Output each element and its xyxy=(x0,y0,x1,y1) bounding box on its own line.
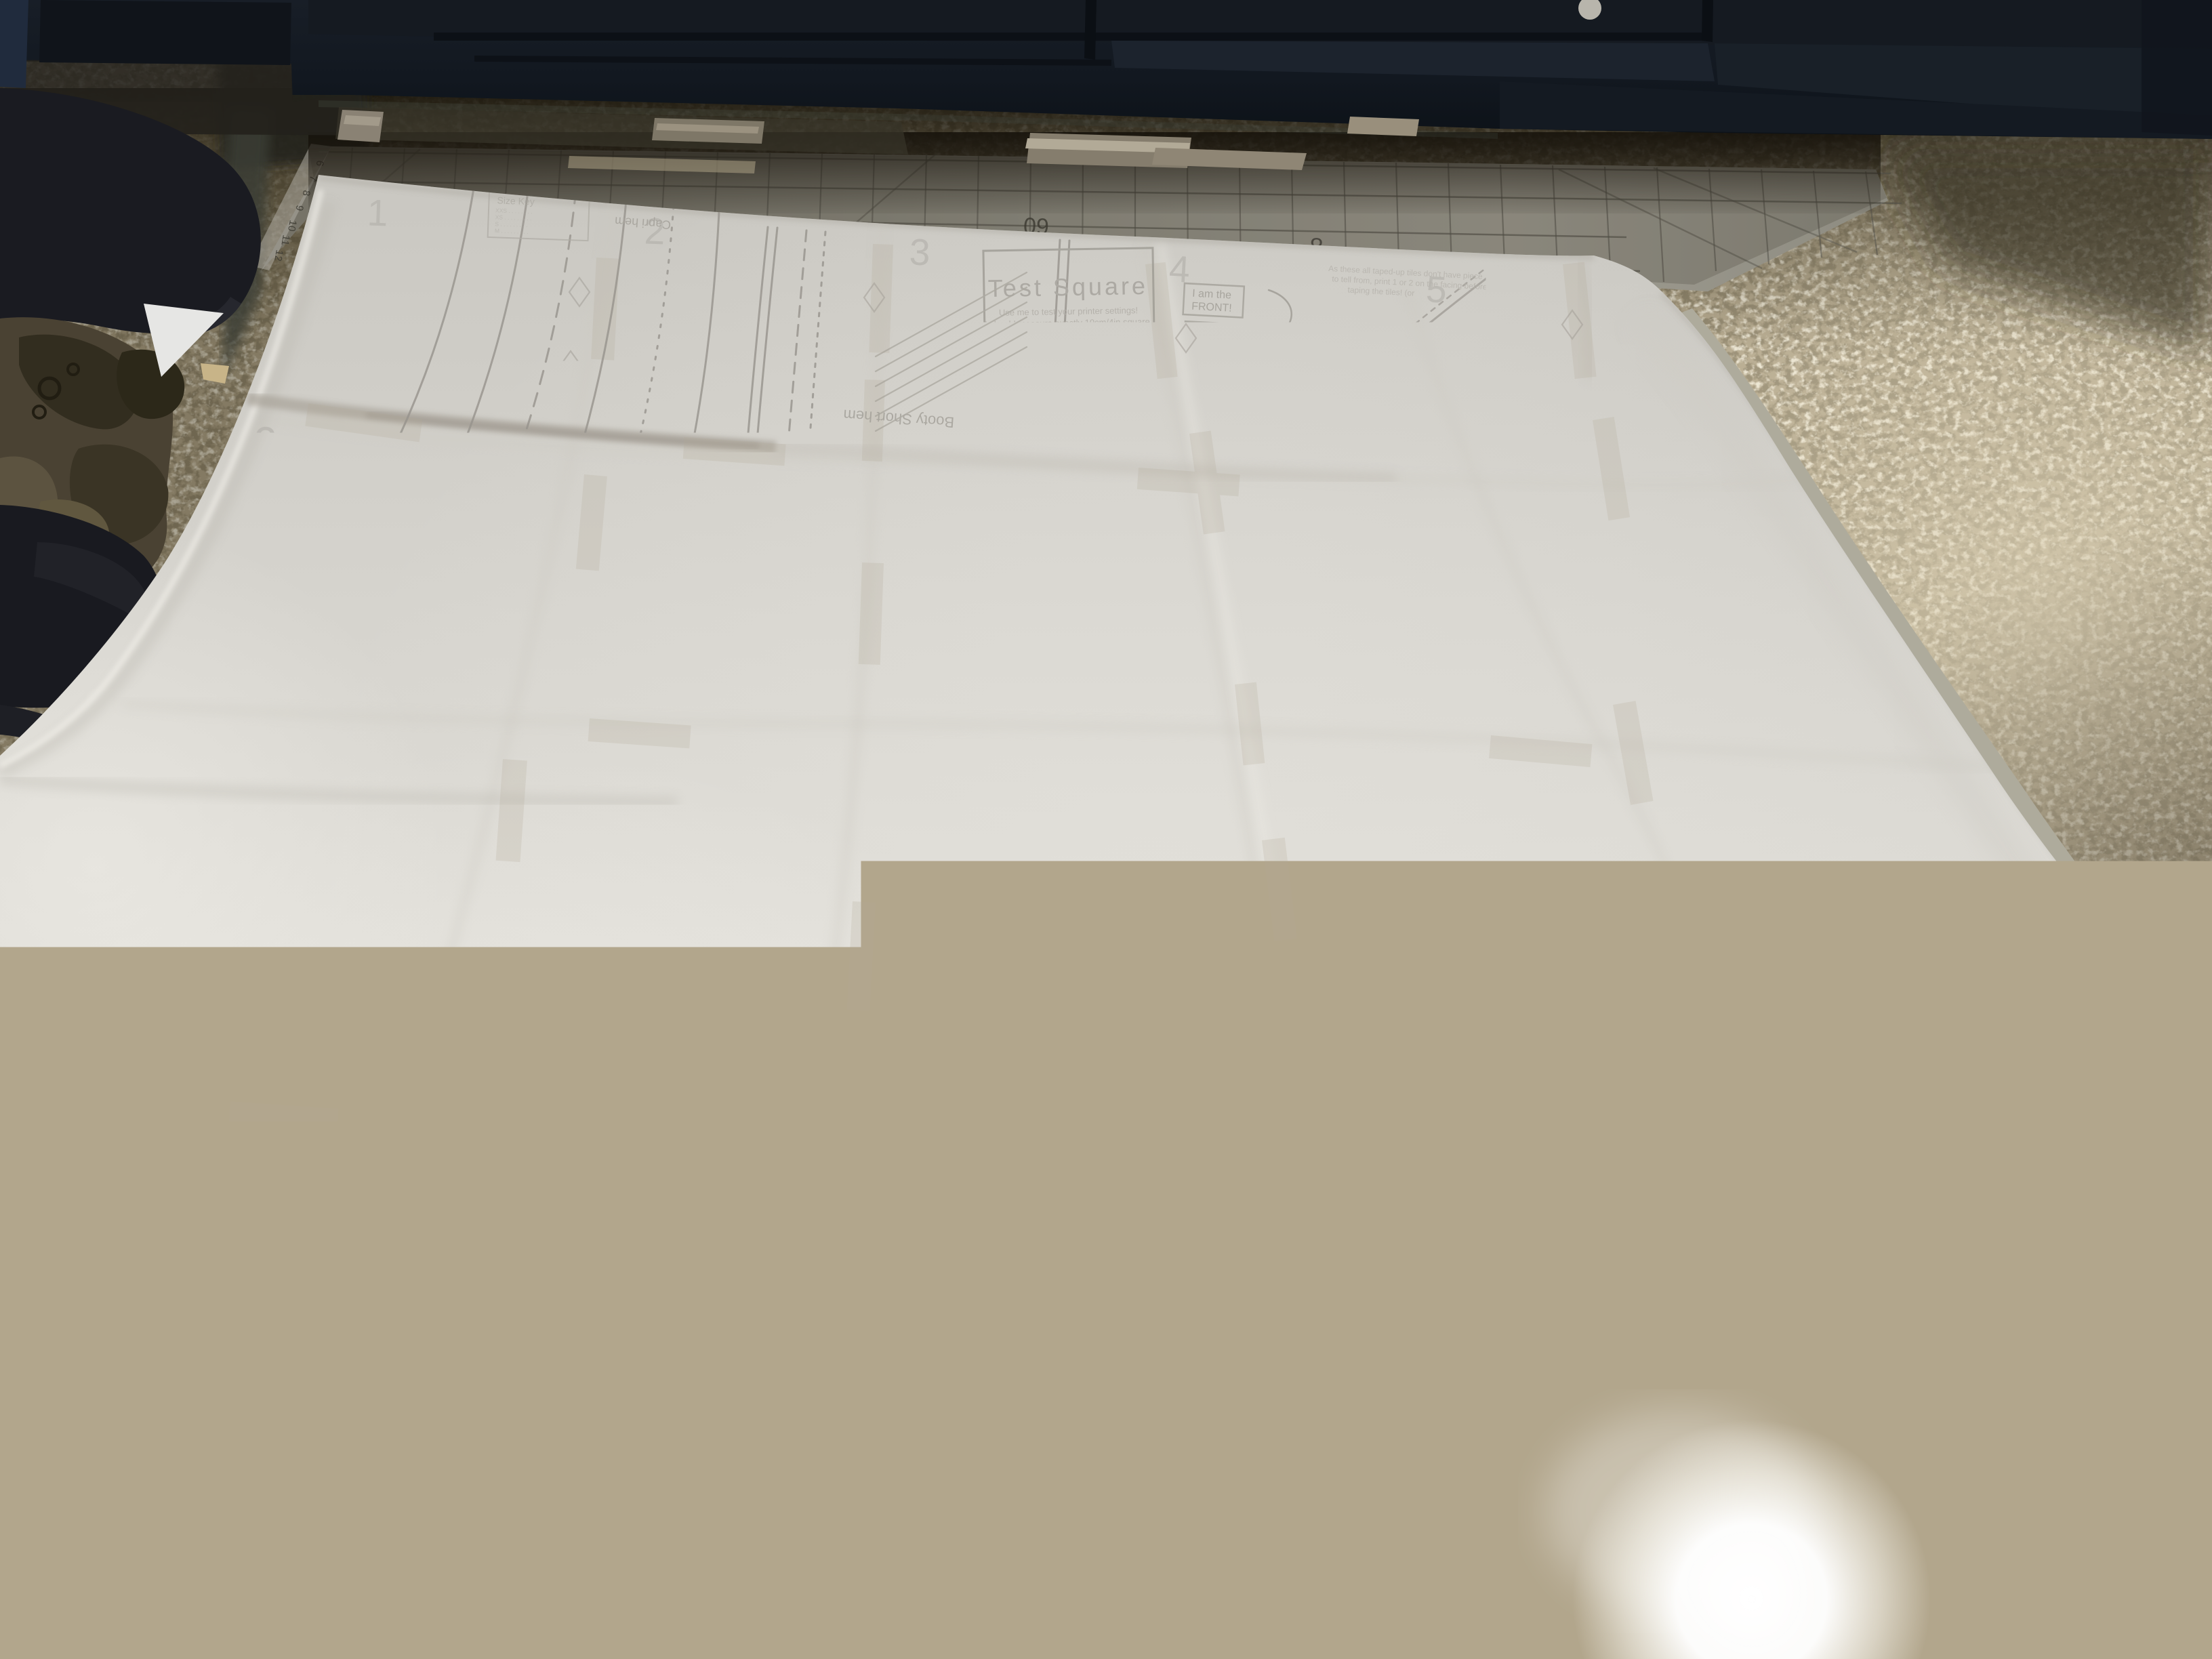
svg-text:I am the: I am the xyxy=(1193,326,1233,340)
svg-text:11: 11 xyxy=(87,693,150,755)
svg-text:18: 18 xyxy=(806,1103,890,1183)
svg-text:M: M xyxy=(1008,1277,1021,1293)
svg-text:XS: XS xyxy=(1612,428,1626,440)
svg-text:S: S xyxy=(702,679,713,695)
svg-text:M . . . . . . . . .: M . . . . . . . . . xyxy=(495,227,529,235)
svg-text:xl: xl xyxy=(1153,819,1165,836)
svg-text:3: 3 xyxy=(909,230,933,273)
svg-text:M: M xyxy=(699,728,712,744)
svg-text:9: 9 xyxy=(1204,463,1233,514)
svg-text:XXS: XXS xyxy=(1551,422,1573,434)
svg-text:f e h r: f e h r xyxy=(1286,1551,1313,1608)
svg-text:L: L xyxy=(8,931,17,947)
svg-text:15: 15 xyxy=(1605,708,1674,773)
svg-text:FRONT!: FRONT! xyxy=(1192,339,1233,352)
svg-text:XL: XL xyxy=(997,737,1015,753)
svg-text:XXS: XXS xyxy=(325,862,352,879)
svg-text:L: L xyxy=(108,853,117,868)
svg-text:XS: XS xyxy=(273,860,292,876)
svg-text:L: L xyxy=(701,775,710,792)
svg-text:XL: XL xyxy=(691,818,709,835)
svg-text:XXS: XXS xyxy=(215,946,243,963)
svg-text:S: S xyxy=(1673,433,1681,445)
svg-text:10: 10 xyxy=(285,219,299,232)
svg-text:12: 12 xyxy=(272,249,285,262)
svg-text:20: 20 xyxy=(1760,1094,1846,1176)
svg-text:10: 10 xyxy=(1510,473,1566,526)
svg-text:I am the: I am the xyxy=(1192,288,1232,302)
svg-text:6: 6 xyxy=(251,417,280,468)
svg-text:XXS: XXS xyxy=(996,1167,1025,1185)
svg-text:XS: XS xyxy=(694,630,714,647)
svg-text:S: S xyxy=(1000,691,1010,707)
svg-text:XXS: XXS xyxy=(686,580,716,598)
svg-text:FRONT!: FRONT! xyxy=(1191,301,1232,314)
svg-text:f e h r: f e h r xyxy=(1303,430,1364,460)
svg-text:11: 11 xyxy=(279,234,291,246)
svg-text:8: 8 xyxy=(893,453,921,504)
svg-text:L: L xyxy=(1011,1313,1020,1330)
svg-text:Attach to Front: Attach to Front xyxy=(1272,520,1288,596)
svg-text:Knee line: Knee line xyxy=(1482,1091,1559,1115)
svg-text:Capri hem: Capri hem xyxy=(1576,1371,1664,1395)
svg-text:M: M xyxy=(1000,709,1012,724)
svg-text:Hip: Hip xyxy=(390,827,415,846)
svg-text:S: S xyxy=(224,858,234,874)
svg-text:Test Square: Test Square xyxy=(987,272,1148,302)
svg-text:12: 12 xyxy=(489,689,556,751)
svg-text:S: S xyxy=(128,942,138,958)
svg-text:1: 1 xyxy=(367,191,391,234)
svg-text:13: 13 xyxy=(877,670,943,732)
svg-text:M: M xyxy=(163,855,176,871)
svg-text:f e h r: f e h r xyxy=(436,807,495,836)
svg-text:XS: XS xyxy=(1004,1203,1024,1220)
svg-text:M: M xyxy=(66,937,78,952)
svg-text:S: S xyxy=(1012,1240,1023,1256)
svg-text:Size Key: Size Key xyxy=(497,194,535,207)
svg-text:XL: XL xyxy=(1000,1349,1019,1366)
svg-text:14: 14 xyxy=(1240,676,1308,740)
svg-text:7: 7 xyxy=(581,441,609,492)
svg-text:XS: XS xyxy=(171,944,190,960)
